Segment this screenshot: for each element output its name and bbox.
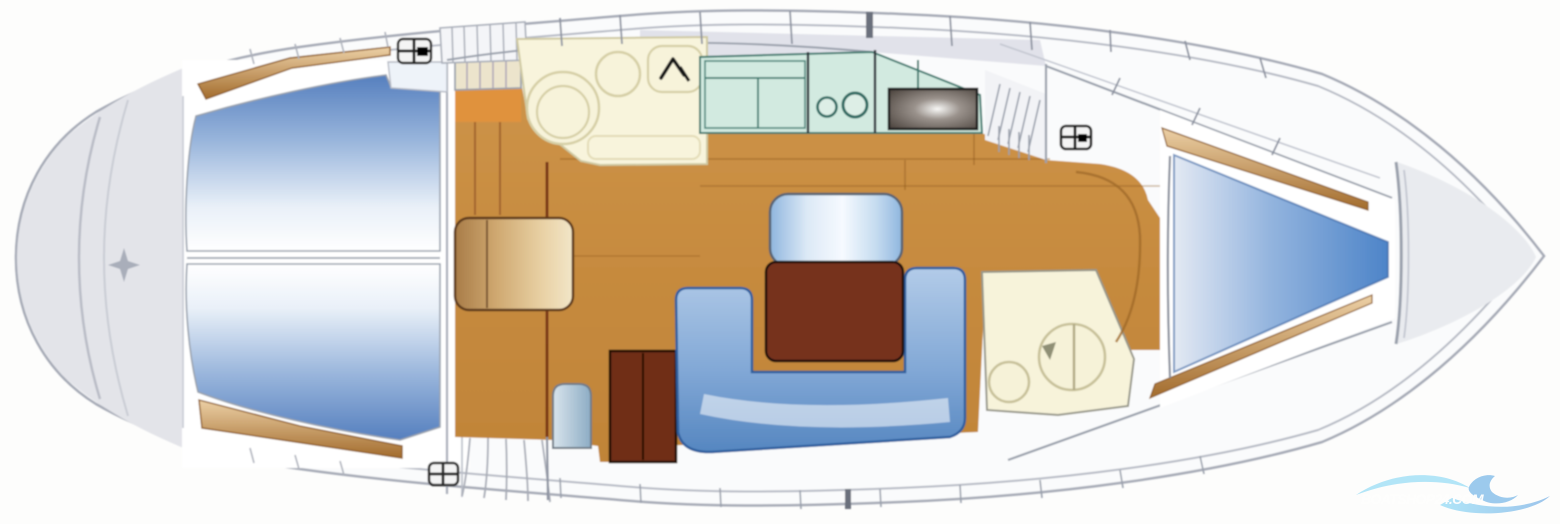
svg-text:BOATSHOP24.COM: BOATSHOP24.COM — [1361, 491, 1484, 507]
